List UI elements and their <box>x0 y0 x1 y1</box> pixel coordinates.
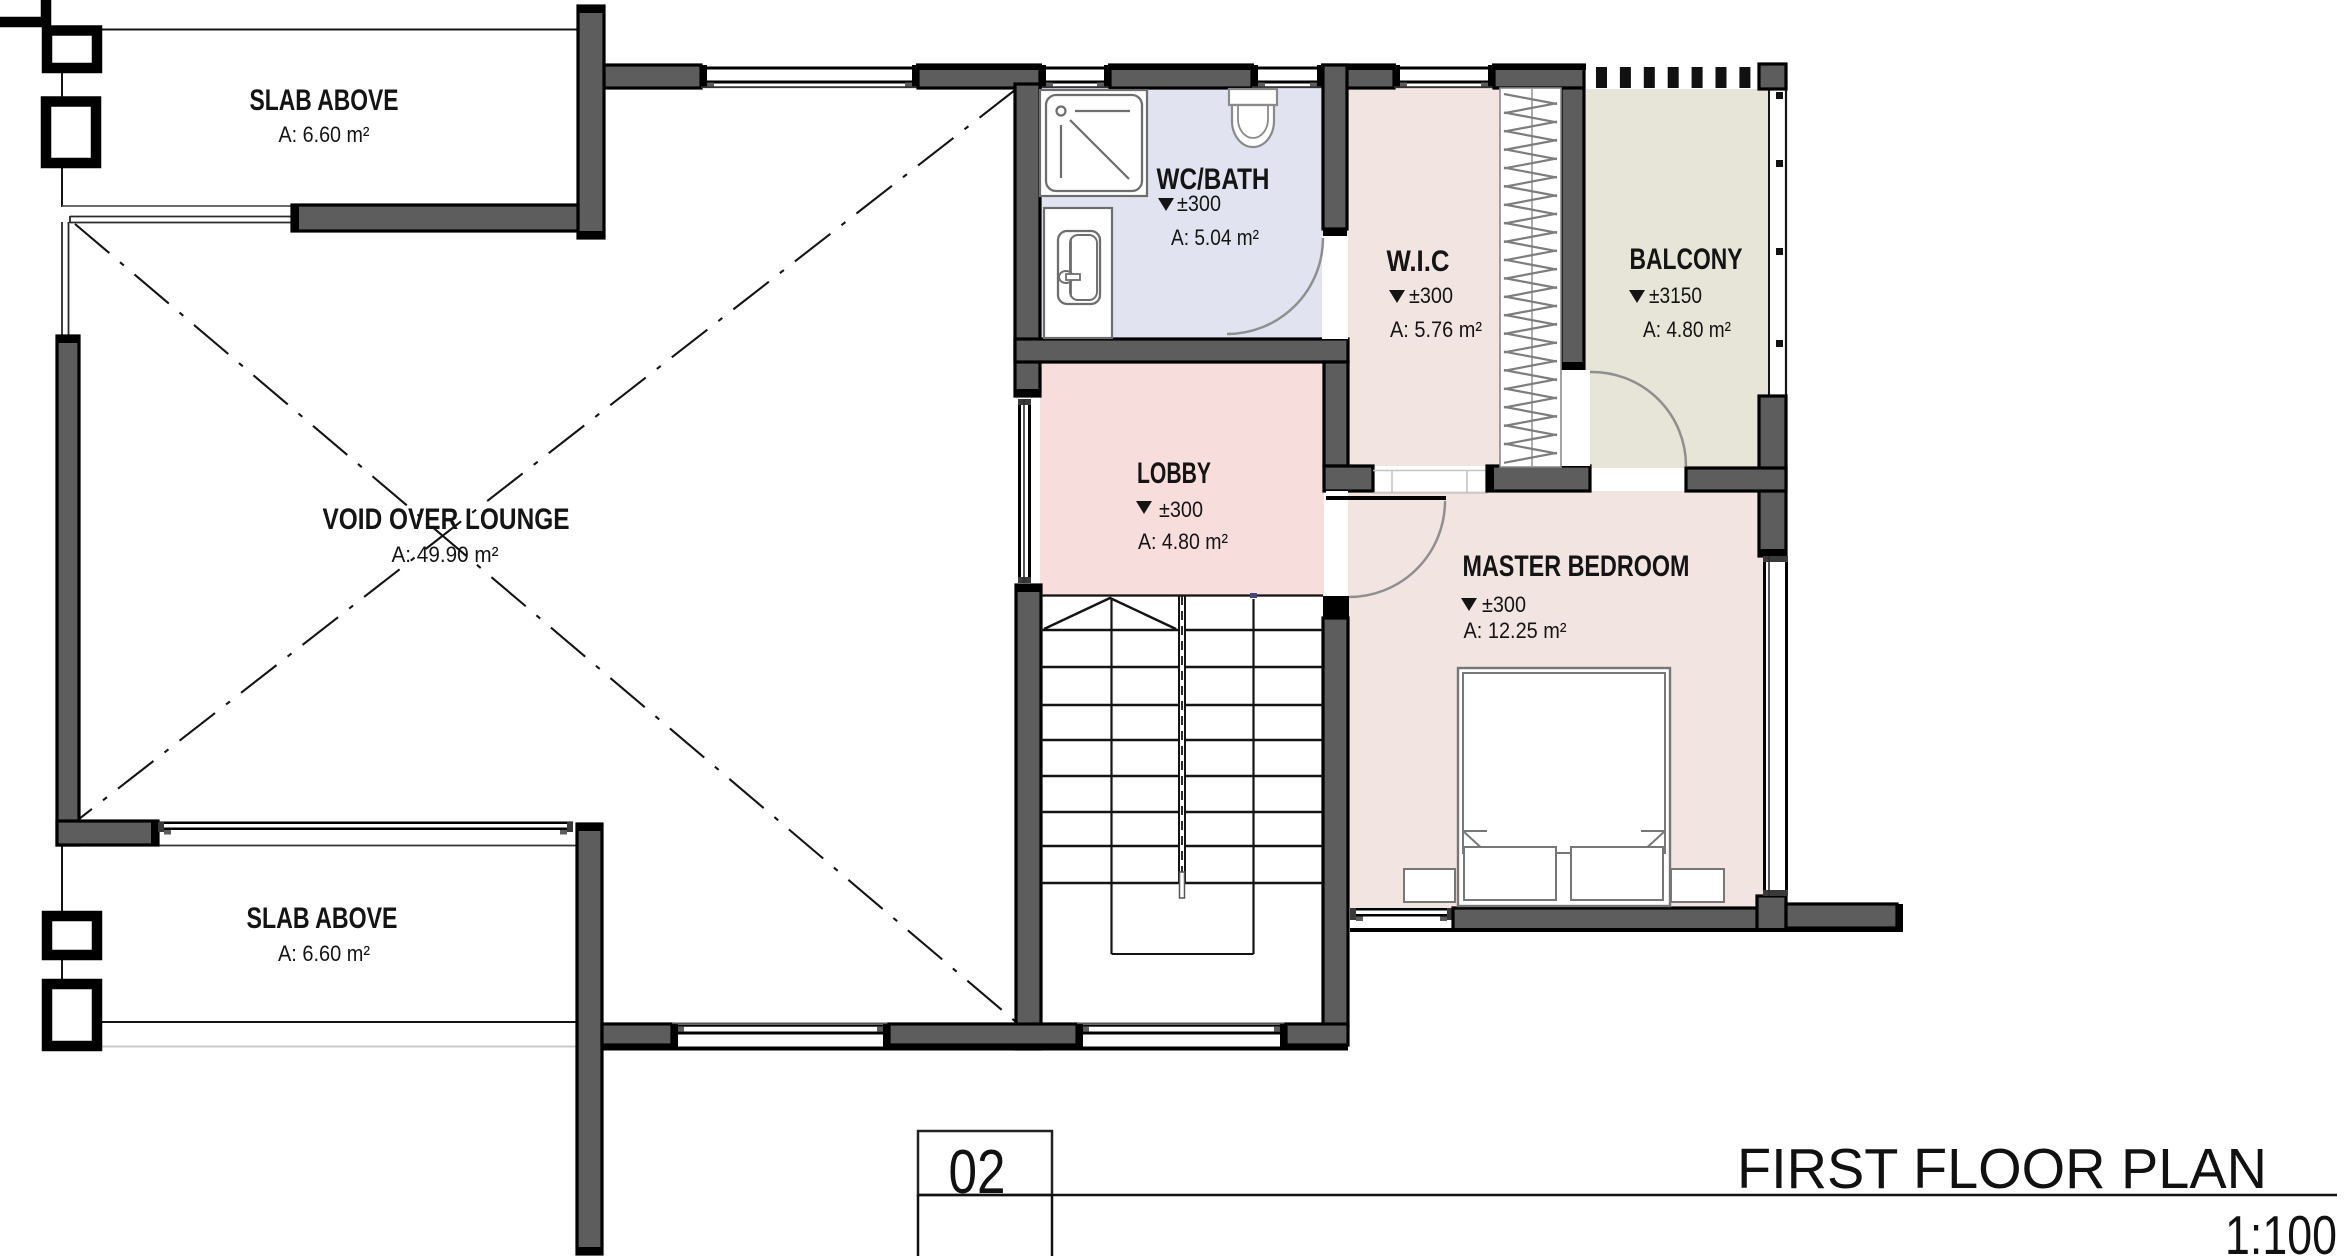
svg-text:VOID OVER LOUNGE: VOID OVER LOUNGE <box>323 503 570 536</box>
svg-text:LOBBY: LOBBY <box>1137 457 1211 490</box>
svg-text:02: 02 <box>949 1138 1006 1207</box>
svg-text:SLAB ABOVE: SLAB ABOVE <box>247 902 398 935</box>
svg-text:±300: ±300 <box>1482 592 1526 617</box>
svg-text:A: 4.80 m²: A: 4.80 m² <box>1138 529 1228 554</box>
svg-text:BALCONY: BALCONY <box>1630 243 1743 276</box>
svg-text:A: 4.80 m²: A: 4.80 m² <box>1643 317 1731 342</box>
svg-text:A: 12.25 m²: A: 12.25 m² <box>1464 618 1567 643</box>
svg-text:A: 5.04 m²: A: 5.04 m² <box>1171 225 1259 250</box>
svg-text:A: 6.60 m²: A: 6.60 m² <box>279 122 370 147</box>
svg-text:A: 5.76 m²: A: 5.76 m² <box>1390 317 1482 342</box>
svg-text:FIRST FLOOR PLAN: FIRST FLOOR PLAN <box>1737 1137 2267 1201</box>
svg-text:1:100: 1:100 <box>2225 1204 2337 1256</box>
svg-text:±300: ±300 <box>1177 191 1221 216</box>
svg-text:A: 6.60 m²: A: 6.60 m² <box>278 941 370 966</box>
svg-text:SLAB ABOVE: SLAB ABOVE <box>250 84 399 117</box>
svg-text:MASTER BEDROOM: MASTER BEDROOM <box>1463 550 1690 583</box>
svg-text:±300: ±300 <box>1409 283 1453 308</box>
svg-text:±300: ±300 <box>1159 497 1203 522</box>
svg-text:±3150: ±3150 <box>1649 283 1702 308</box>
svg-text:A: 49.90 m²: A: 49.90 m² <box>392 542 499 567</box>
svg-text:W.I.C: W.I.C <box>1387 245 1450 278</box>
